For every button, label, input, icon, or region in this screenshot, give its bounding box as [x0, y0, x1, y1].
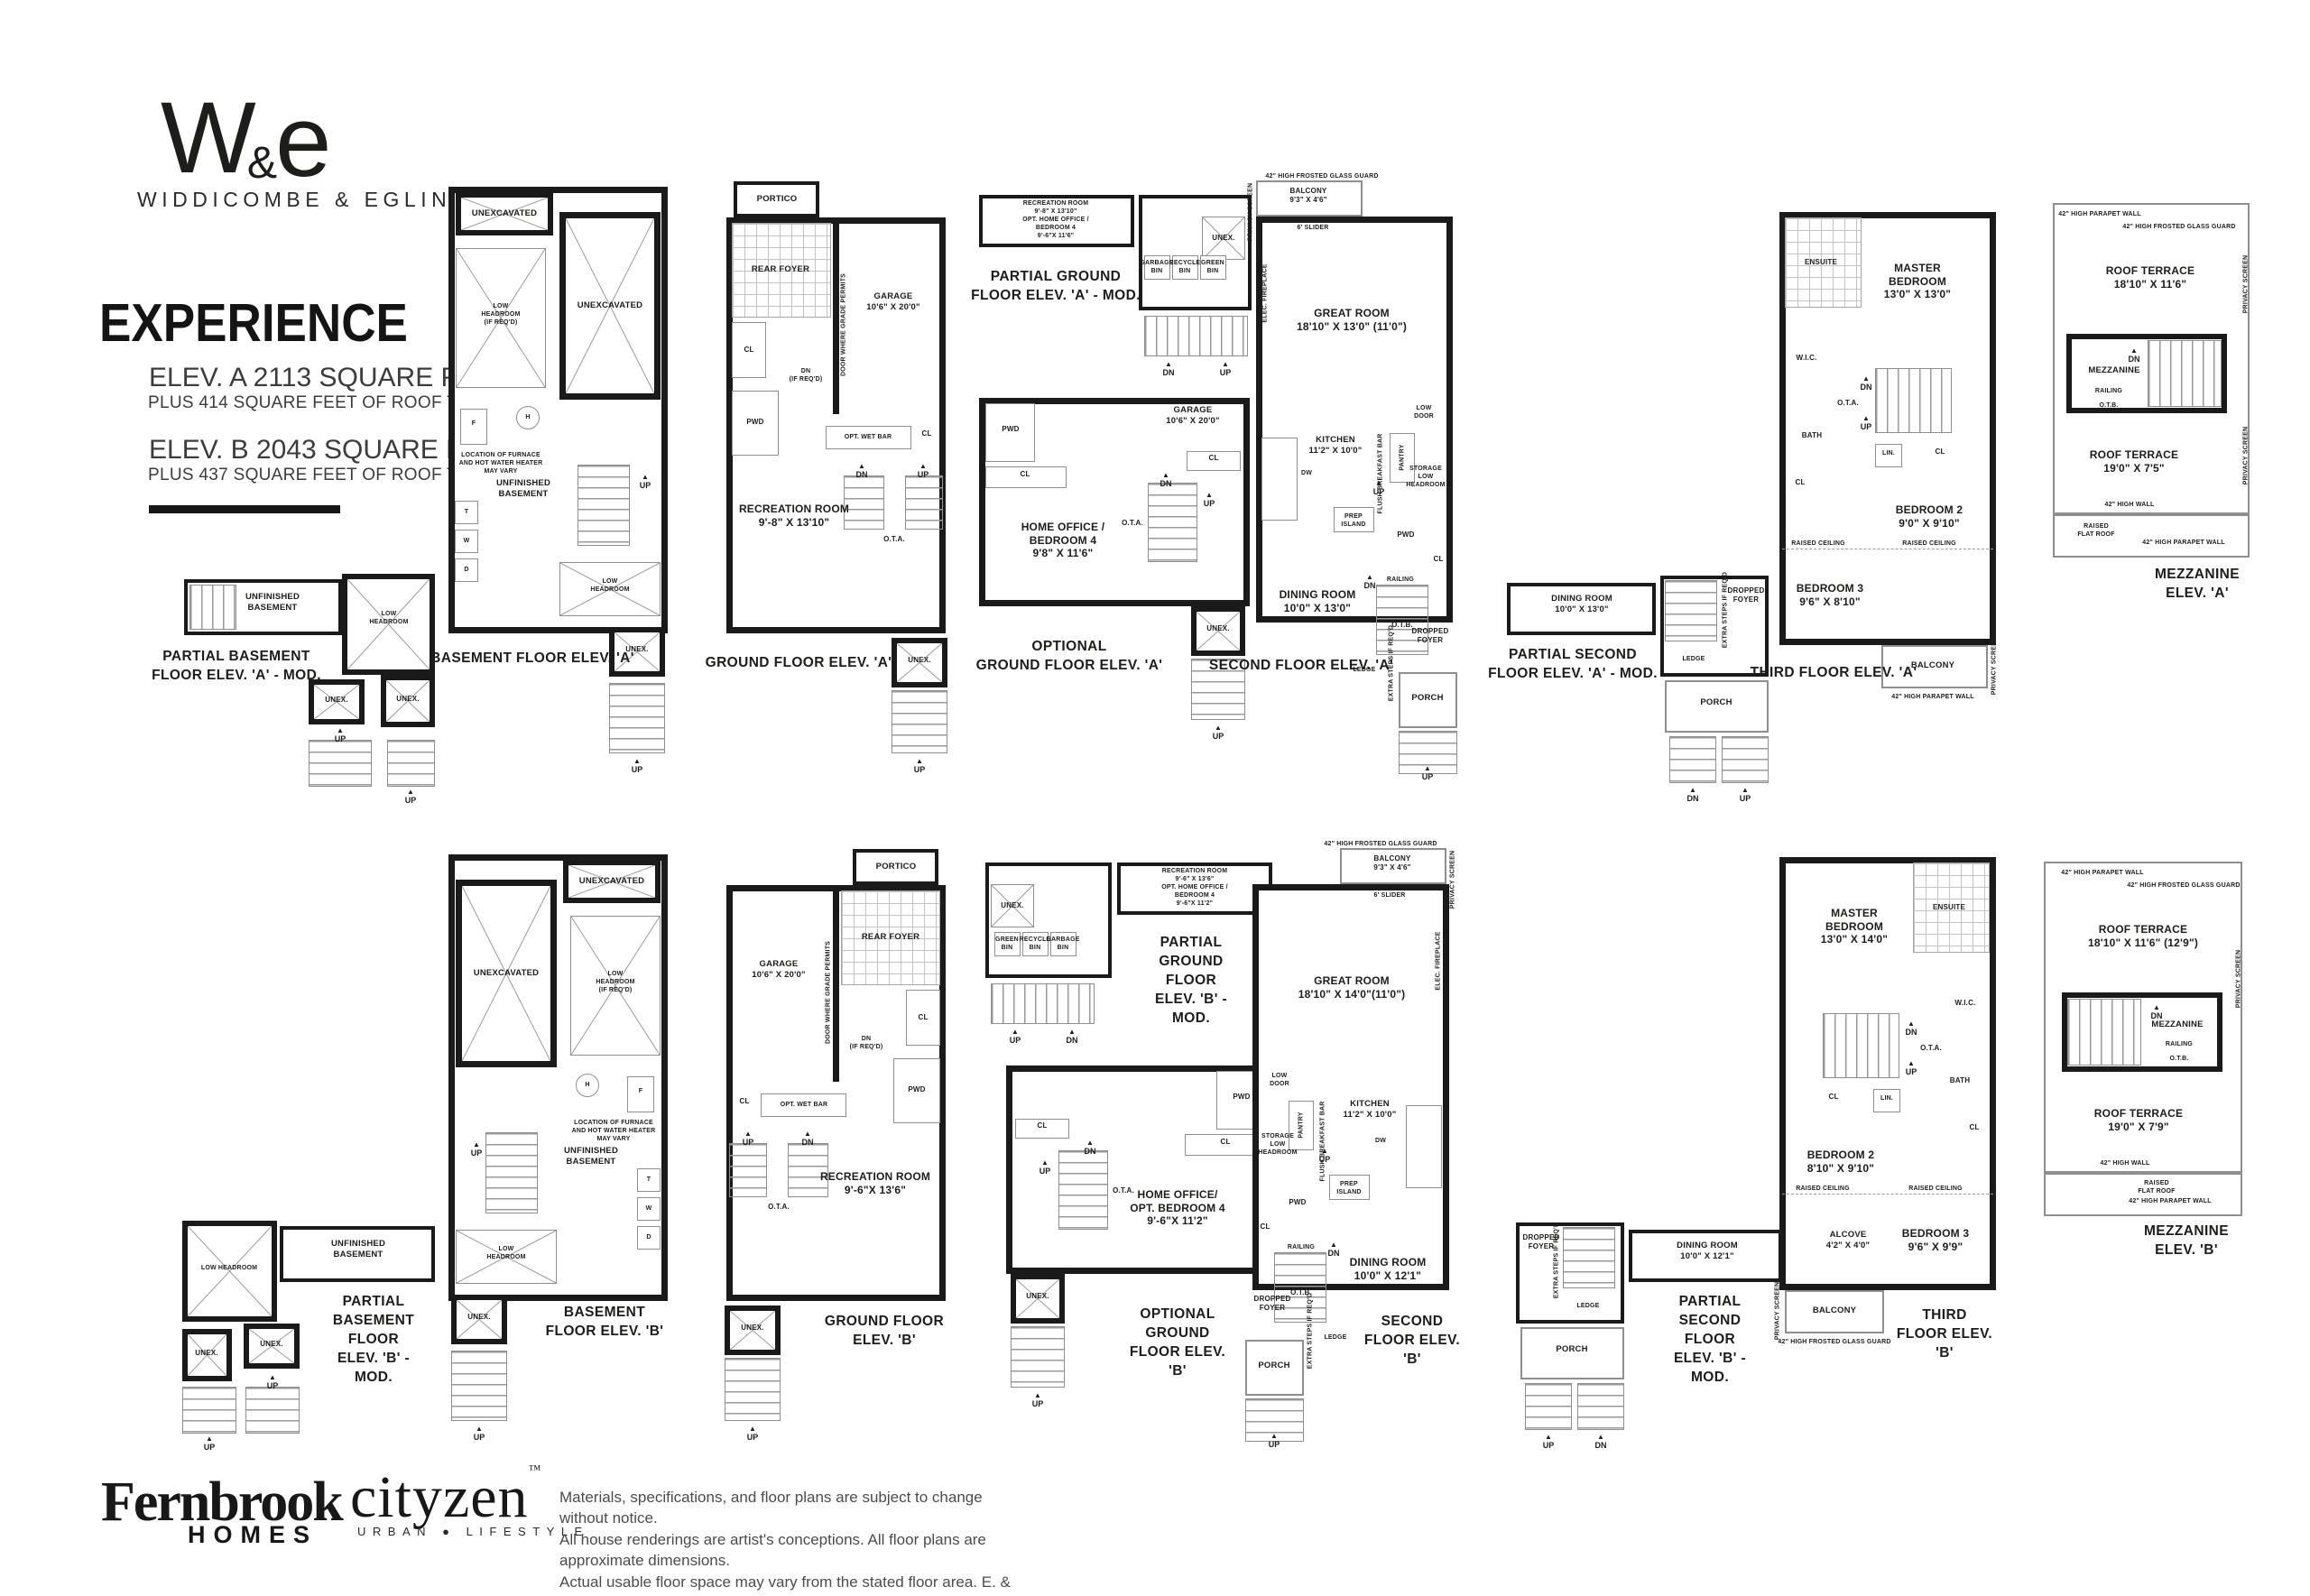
up-arrow: UP — [747, 1425, 759, 1442]
plan-partial-and-optional-ground-a: RECREATION ROOM 9'-8" X 13'10" OPT. HOME… — [975, 176, 1281, 771]
plan-partial-basement-b: LOW HEADROOM UNFINISHED BASEMENT UNEX. U… — [173, 1213, 444, 1448]
extra-steps-note: EXTRA STEPS IF REQ'D — [1306, 1293, 1314, 1369]
room-label-porch: PORCH — [1411, 693, 1443, 704]
up-arrow: UP — [918, 463, 929, 479]
stairs — [485, 1132, 538, 1213]
fireplace-note: ELEC. FIREPLACE — [1434, 931, 1442, 990]
plan-caption: PARTIAL BASEMENT FLOOR ELEV. 'A' - MOD. — [152, 648, 321, 686]
room-label-roof-terrace: ROOF TERRACE 18'10" X 11'6" — [2106, 264, 2194, 291]
up-arrow: UP — [1220, 361, 1232, 377]
room-label-lin: LIN. — [1880, 1094, 1893, 1102]
plan-caption: BASEMENT FLOOR ELEV. 'A' — [430, 650, 634, 669]
plan-caption: MEZZANINE ELEV. 'A' — [2141, 566, 2254, 604]
room-label-low-headroom: LOW HEADROOM (IF REQ'D) — [596, 970, 634, 994]
letter-w: W — [464, 537, 470, 545]
logo-e: e — [275, 105, 331, 179]
room-label-home-office: HOME OFFICE/ OPT. BEDROOM 4 9'-6"X 11'2" — [1130, 1188, 1224, 1228]
stairs-up — [729, 1143, 767, 1197]
letter-t: T — [647, 1176, 651, 1184]
dn-arrow: DN — [1067, 1029, 1078, 1045]
room-label-bedroom2: BEDROOM 2 8'10" X 9'10" — [1807, 1149, 1874, 1175]
letter-h: H — [525, 413, 530, 421]
plan-caption: SECOND FLOOR ELEV. 'A' — [1209, 657, 1393, 676]
entry-stairs — [609, 683, 665, 753]
room-label-dining: DINING ROOM 10'0" X 13'0" — [1551, 594, 1612, 614]
up-arrow: UP — [1740, 787, 1751, 803]
plan-caption: MEZZANINE ELEV. 'B' — [2127, 1222, 2246, 1260]
room-label-unex: UNEX. — [1001, 901, 1023, 910]
room-label-cl: CL — [739, 1097, 749, 1106]
up-arrow: UP — [1861, 415, 1872, 431]
stairs — [1144, 316, 1248, 356]
plan-partial-second-b: DROPPED FOYER EXTRA STEPS IF REQ'D LEDGE… — [1507, 1213, 1796, 1448]
letter-h: H — [585, 1081, 589, 1089]
dn-arrow: DN — [2129, 347, 2140, 364]
privacy-screen-note: PRIVACY SCREEN — [1448, 851, 1456, 909]
fireplace-note: ELEC. FIREPLACE — [1261, 263, 1269, 322]
room-label-portico: PORTICO — [757, 194, 798, 205]
room-label-cl: CL — [1260, 1222, 1270, 1232]
entry-stairs — [892, 690, 947, 753]
dn-arrow: DN — [1163, 361, 1175, 377]
room-label-dining: DINING ROOM 10'0" X 13'0" — [1280, 588, 1356, 614]
door-grade-note: DOOR WHERE GRADE PERMITS — [824, 941, 832, 1044]
dn-arrow: DN — [2151, 1004, 2163, 1020]
plan-mezzanine-a: 42" HIGH PARAPET WALL 42" HIGH FROSTED G… — [2044, 185, 2310, 609]
plan-caption: GROUND FLOOR ELEV. 'A' — [706, 654, 892, 673]
disclaimer-line-3: Actual usable floor space may vary from … — [559, 1573, 1011, 1596]
raised-flat-roof-note: RAISED FLAT ROOF — [2138, 1179, 2175, 1195]
room-label-dropped-foyer: DROPPED FOYER — [1412, 627, 1449, 645]
dn-arrow: DN — [1160, 472, 1172, 488]
letter-w: W — [646, 1204, 652, 1213]
room-label-porch: PORCH — [1556, 1344, 1587, 1355]
room-label-roof-terrace: ROOF TERRACE 18'10" X 11'6" (12'9") — [2088, 923, 2198, 949]
entry-stairs — [725, 1358, 781, 1421]
high-wall-note: 42" HIGH WALL — [2105, 501, 2155, 509]
room-label-wic: W.I.C. — [1797, 354, 1817, 363]
room-label-unfinished-basement: UNFINISHED BASEMENT — [564, 1146, 618, 1167]
stairs — [1875, 368, 1952, 433]
letter-f: F — [639, 1087, 642, 1095]
parapet-note: 42" HIGH PARAPET WALL — [2058, 210, 2140, 218]
room-label-prep-island: PREP ISLAND — [1341, 512, 1365, 529]
room-label-unexcavated: UNEXCAVATED — [579, 876, 644, 887]
foyer-stairs — [1665, 580, 1717, 641]
room-label-unex: UNEX. — [195, 1349, 217, 1358]
room-label-pwd: PWD — [1397, 530, 1414, 540]
raised-ceiling-note: RAISED CEILING — [1791, 540, 1845, 548]
room-label-dining: DINING ROOM 10'0" X 12'1" — [1677, 1241, 1738, 1261]
parapet-note: 42" HIGH PARAPET WALL — [1891, 693, 1973, 701]
fernbrook-homes-label: HOMES — [188, 1521, 318, 1549]
ledge-note: LEDGE — [1324, 1333, 1346, 1342]
up-arrow: UP — [1039, 1159, 1051, 1176]
dn-if-reqd: DN (IF REQ'D) — [790, 367, 823, 383]
we-logo: W & e — [161, 97, 331, 179]
plan-second-b: 42" HIGH FROSTED GLASS GUARD PRIVACY SCR… — [1245, 839, 1525, 1453]
plan-caption: GROUND FLOOR ELEV. 'B' — [819, 1313, 950, 1351]
room-label-otb: O.T.B. — [2099, 401, 2118, 410]
room-label-cl: CL — [744, 346, 753, 355]
trademark-symbol: ™ — [529, 1463, 542, 1477]
up-arrow: UP — [640, 474, 651, 490]
room-label-wet-bar: OPT. WET BAR — [845, 433, 892, 441]
slider-note: 6' SLIDER — [1298, 224, 1329, 232]
raised-ceiling-note: RAISED CEILING — [1908, 1185, 1963, 1193]
divider-rule — [149, 505, 340, 513]
glass-guard-note: 42" HIGH FROSTED GLASS GUARD — [1265, 172, 1378, 180]
room-label-ota: O.T.A. — [1837, 399, 1859, 408]
room-label-master: MASTER BEDROOM 13'0" X 14'0" — [1821, 907, 1888, 946]
up-arrow: UP — [1204, 492, 1215, 508]
room-label-wet-bar: OPT. WET BAR — [781, 1101, 828, 1109]
up-arrow: UP — [405, 789, 417, 805]
room-label-low-headroom: LOW HEADROOM — [369, 610, 408, 626]
room-label-mezzanine: MEZZANINE — [2088, 365, 2139, 376]
up-arrow: UP — [1032, 1392, 1044, 1408]
up-arrow: UP — [471, 1141, 483, 1158]
plan-partial-and-optional-ground-b: RECREATION ROOM 9'-6" X 13'6" OPT. HOME … — [975, 844, 1281, 1439]
room-label-porch: PORCH — [1700, 697, 1732, 708]
stairs — [1577, 1383, 1624, 1430]
room-label-low-headroom: LOW HEADROOM — [486, 1245, 525, 1261]
room-label-bedroom2: BEDROOM 2 9'0" X 9'10" — [1896, 503, 1963, 530]
up-arrow: UP — [632, 758, 643, 774]
bin-label: GREEN BIN — [995, 936, 1019, 952]
room-label-porch: PORCH — [1258, 1361, 1289, 1371]
stairs — [1058, 1150, 1108, 1230]
disclaimer-line-2: All house renderings are artist's concep… — [559, 1531, 986, 1569]
low-headroom-hatch — [189, 585, 236, 630]
room-label-pwd: PWD — [908, 1085, 925, 1094]
logo-w: W — [161, 97, 251, 179]
room-label-cl: CL — [1208, 454, 1218, 463]
dn-arrow: DN — [1906, 1020, 1917, 1037]
stairs — [1669, 736, 1716, 783]
stairs — [1525, 1383, 1572, 1430]
letter-t: T — [465, 508, 468, 516]
plan-caption: OPTIONAL GROUND FLOOR ELEV. 'B' — [1126, 1305, 1230, 1381]
plan-caption: THIRD FLOOR ELEV. 'A' — [1751, 664, 1917, 683]
room-label-mezzanine: MEZZANINE — [2151, 1019, 2203, 1030]
glass-guard-note: 42" HIGH FROSTED GLASS GUARD — [2127, 881, 2240, 890]
railing-note: RAILING — [1387, 576, 1414, 584]
room-label-prep-island: PREP ISLAND — [1336, 1180, 1361, 1196]
room-label-unex: UNEX. — [1206, 624, 1229, 633]
room-label-roof-terrace2: ROOF TERRACE 19'0" X 7'5" — [2090, 448, 2178, 475]
room-label-bedroom3: BEDROOM 3 9'6" X 8'10" — [1797, 582, 1863, 608]
furnace-note: LOCATION OF FURNACE AND HOT WATER HEATER… — [459, 451, 543, 475]
garage-wall — [833, 890, 839, 1082]
breakfast-bar-note: FLUSH BREAKFAST BAR — [1376, 434, 1384, 514]
room-label-garage: GARAGE 10'6" X 20'0" — [752, 959, 805, 980]
stairs — [245, 1387, 300, 1434]
door-grade-note: DOOR WHERE GRADE PERMITS — [839, 273, 847, 376]
room-label-wic: W.I.C. — [1955, 999, 1976, 1008]
room-label-roof-terrace2: ROOF TERRACE 19'0" X 7'9" — [2094, 1107, 2183, 1133]
room-label-rec-room: RECREATION ROOM 9'-8" X 13'10" OPT. HOME… — [1022, 199, 1089, 240]
bin-label: RECYCLE BIN — [1169, 259, 1201, 275]
glass-guard-note: 42" HIGH FROSTED GLASS GUARD — [1324, 840, 1437, 848]
privacy-screen-note: PRIVACY SCREEN — [2241, 255, 2250, 313]
room-label-pwd: PWD — [746, 418, 763, 427]
room-label-unex: UNEX. — [260, 1340, 282, 1349]
furnace-note: LOCATION OF FURNACE AND HOT WATER HEATER… — [572, 1119, 656, 1143]
dn-arrow: DN — [856, 463, 868, 479]
room-label-unex: UNEX. — [908, 656, 930, 665]
room-label-unex: UNEX. — [467, 1313, 490, 1322]
plan-caption: PARTIAL BASEMENT FLOOR ELEV. 'B' - MOD. — [333, 1293, 414, 1388]
dn-arrow: DN — [802, 1130, 814, 1147]
up-arrow: UP — [1213, 724, 1224, 741]
room-label-portico: PORTICO — [876, 862, 917, 872]
room-label-pwd: PWD — [1002, 425, 1019, 434]
up-arrow: UP — [335, 727, 346, 743]
high-wall-note: 42" HIGH WALL — [2101, 1159, 2150, 1167]
room-label-cl: CL — [921, 429, 931, 438]
room-label-bath: BATH — [1802, 431, 1822, 440]
room-label-cl: CL — [1935, 447, 1945, 457]
kitchen-counter — [1406, 1105, 1442, 1188]
privacy-screen-note: PRIVACY SCREEN — [2241, 427, 2250, 484]
room-label-balcony: BALCONY 9'3" X 4'6" — [1373, 854, 1410, 872]
room-label-ota: O.T.A. — [1122, 519, 1143, 528]
parapet-note: 42" HIGH PARAPET WALL — [2061, 869, 2143, 877]
storage-low-headroom: STORAGE LOW HEADROOM — [1406, 465, 1445, 489]
room-label-cl: CL — [1795, 478, 1805, 487]
plan-third-a: ENSUITE MASTER BEDROOM 13'0" X 13'0" W.I… — [1769, 198, 2044, 704]
room-label-unex: UNEX. — [396, 695, 419, 704]
dn-if-reqd: DN (IF REQ'D) — [850, 1035, 883, 1051]
floor-plan-sheet: W & e WIDDICOMBE & EGLINTON EXPERIENCE E… — [0, 0, 2310, 1596]
plan-caption: BASEMENT FLOOR ELEV. 'B' — [537, 1304, 672, 1342]
low-door-note: LOW DOOR — [1270, 1072, 1289, 1088]
cityzen-tagline: URBAN ● LIFESTYLE — [357, 1525, 589, 1538]
entry-stairs — [451, 1351, 507, 1421]
room-label-cl: CL — [1037, 1121, 1047, 1130]
logo-ampersand: & — [247, 149, 277, 177]
dn-arrow: DN — [1595, 1434, 1607, 1450]
foyer-stairs — [1563, 1227, 1615, 1288]
room-label-cl: CL — [1020, 470, 1030, 479]
raised-ceiling-line — [1782, 1194, 1993, 1195]
up-arrow: UP — [743, 1130, 754, 1147]
plan-partial-second-a: DINING ROOM 10'0" X 13'0" EXTRA STEPS IF… — [1502, 567, 1791, 801]
room-label-great-room: GREAT ROOM 18'10" X 14'0"(11'0") — [1298, 974, 1406, 1001]
raised-ceiling-note: RAISED CEILING — [1902, 540, 1956, 548]
plan-ground-a: PORTICO REAR FOYER GARAGE 10'6" X 20'0" … — [717, 176, 1015, 780]
up-arrow: UP — [1373, 480, 1385, 496]
mezzanine-stairs — [2067, 999, 2141, 1066]
up-arrow: UP — [1269, 1433, 1280, 1449]
stairs — [182, 1387, 236, 1434]
privacy-screen-note: PRIVACY SCREEN — [1773, 1282, 1781, 1340]
parapet-note: 42" HIGH PARAPET WALL — [2129, 1197, 2211, 1205]
stairs — [1722, 736, 1769, 783]
room-label-dw: DW — [1301, 469, 1312, 477]
room-label-unex: UNEX. — [1026, 1292, 1049, 1301]
room-label-balcony: BALCONY — [1911, 660, 1954, 671]
glass-guard-note: 42" HIGH FROSTED GLASS GUARD — [1778, 1338, 1890, 1346]
up-arrow: UP — [1906, 1060, 1917, 1076]
room-label-great-room: GREAT ROOM 18'10" X 13'0" (11'0") — [1297, 307, 1407, 333]
extra-steps-note: EXTRA STEPS IF REQ'D — [1721, 572, 1729, 648]
disclaimer-line-1: Materials, specifications, and floor pla… — [559, 1489, 983, 1527]
room-label-kitchen: KITCHEN 11'2" X 10'0" — [1344, 1099, 1397, 1120]
plan-caption: PARTIAL SECOND FLOOR ELEV. 'A' - MOD. — [1488, 646, 1658, 684]
kitchen-counter — [1261, 438, 1298, 521]
room-label-low-headroom: LOW HEADROOM (IF REQ'D) — [481, 302, 520, 327]
dn-arrow: DN — [1364, 574, 1376, 590]
room-label-low-headroom: LOW HEADROOM — [201, 1264, 257, 1272]
room-label-ensuite: ENSUITE — [1933, 903, 1965, 912]
up-arrow: UP — [1422, 765, 1434, 781]
room-label-rear-foyer: REAR FOYER — [752, 264, 809, 275]
up-arrow: UP — [267, 1374, 279, 1390]
room-label-master: MASTER BEDROOM 13'0" X 13'0" — [1884, 262, 1951, 301]
room-label-recreation: RECREATION ROOM 9'-6"X 13'6" — [820, 1170, 930, 1196]
room-label-pwd: PWD — [1289, 1198, 1306, 1207]
raised-ceiling-line — [1782, 549, 1993, 549]
ledge-note: LEDGE — [1682, 655, 1705, 663]
room-label-garage: GARAGE 10'6" X 20'0" — [1166, 405, 1219, 426]
cityzen-wordmark: cityzen — [350, 1464, 529, 1530]
stairs — [991, 983, 1095, 1024]
room-label-balcony: BALCONY — [1813, 1305, 1856, 1316]
room-label-unfinished-basement: UNFINISHED BASEMENT — [331, 1239, 385, 1259]
plan-ground-b: PORTICO REAR FOYER GARAGE 10'6" X 20'0" … — [717, 844, 1015, 1448]
room-label-cl: CL — [1433, 555, 1443, 564]
room-label-unex: UNEX. — [325, 696, 347, 705]
room-label-rear-foyer: REAR FOYER — [862, 932, 919, 943]
room-label-pantry: PANTRY — [1398, 444, 1406, 470]
low-door-note: LOW DOOR — [1414, 404, 1434, 420]
room-label-unex: UNEX. — [741, 1324, 763, 1333]
plan-third-b: MASTER BEDROOM 13'0" X 14'0" ENSUITE W.I… — [1769, 844, 2044, 1349]
room-label-ota: O.T.A. — [883, 535, 905, 544]
plan-caption: SECOND FLOOR ELEV. 'B' — [1356, 1313, 1469, 1370]
room-label-alcove: ALCOVE 4'2" X 4'0" — [1826, 1230, 1870, 1250]
disclaimer-text: Materials, specifications, and floor pla… — [559, 1487, 1029, 1596]
stairs — [1148, 483, 1197, 562]
room-label-cl: CL — [1220, 1138, 1230, 1147]
up-arrow: UP — [474, 1425, 485, 1442]
bin-label: GARBAGE BIN — [1046, 936, 1079, 952]
room-label-home-office: HOME OFFICE / BEDROOM 4 9'8" X 11'6" — [1021, 521, 1105, 560]
plan-caption: PARTIAL GROUND FLOOR ELEV. 'B' - MOD. — [1146, 934, 1236, 1029]
raised-flat-roof-note: RAISED FLAT ROOF — [2077, 522, 2114, 539]
railing-note: RAILING — [1288, 1243, 1315, 1251]
up-arrow: UP — [1010, 1029, 1021, 1045]
plan-caption: THIRD FLOOR ELEV. 'B' — [1895, 1306, 1994, 1363]
stairs-dn — [844, 475, 884, 530]
room-label-balcony: BALCONY 9'3" X 4'6" — [1289, 187, 1326, 205]
entry-stairs — [1011, 1326, 1065, 1388]
room-label-cl: CL — [918, 1013, 928, 1022]
room-label-kitchen: KITCHEN 11'2" X 10'0" — [1309, 435, 1363, 456]
plan-partial-basement-a: UNFINISHED BASEMENT LOW HEADROOM UNEX. U… — [173, 567, 444, 801]
room-label-ensuite: ENSUITE — [1805, 258, 1837, 267]
slider-note: 6' SLIDER — [1374, 891, 1406, 899]
room-label-ota: O.T.A. — [1920, 1044, 1942, 1053]
room-label-cl: CL — [1828, 1093, 1838, 1102]
room-label-pantry: PANTRY — [1297, 1112, 1305, 1138]
room-label-unex: UNEX. — [1212, 234, 1234, 243]
room-label-cl: CL — [1969, 1123, 1979, 1132]
room-label-bedroom3: BEDROOM 3 9'6" X 9'9" — [1902, 1227, 1969, 1253]
room-label-unexcavated: UNEXCAVATED — [472, 208, 537, 219]
mezzanine-stairs — [2148, 340, 2222, 407]
storage-low-headroom: STORAGE LOW HEADROOM — [1258, 1132, 1297, 1157]
extra-steps-note: EXTRA STEPS IF REQ'D — [1552, 1222, 1560, 1298]
stairs — [1823, 1013, 1899, 1078]
dn-arrow: DN — [1861, 375, 1872, 392]
privacy-screen-note: PRIVACY SCREEN — [1246, 183, 1254, 241]
plan-caption: OPTIONAL GROUND FLOOR ELEV. 'A' — [976, 638, 1163, 676]
dn-arrow: DN — [1687, 787, 1699, 803]
up-arrow: UP — [204, 1435, 216, 1452]
room-label-unfinished-basement: UNFINISHED BASEMENT — [496, 478, 550, 499]
dn-arrow: DN — [1085, 1139, 1096, 1156]
room-label-rec-room: RECREATION ROOM 9'-6" X 13'6" OPT. HOME … — [1151, 867, 1238, 908]
room-label-unexcavated: UNEXCAVATED — [577, 300, 642, 311]
up-arrow: UP — [1543, 1434, 1555, 1450]
room-label-bath: BATH — [1950, 1076, 1970, 1085]
room-label-dropped-foyer: DROPPED FOYER — [1254, 1295, 1291, 1313]
parapet-note: 42" HIGH PARAPET WALL — [2142, 539, 2224, 547]
glass-guard-note: 42" HIGH FROSTED GLASS GUARD — [2122, 223, 2235, 231]
plan-caption: PARTIAL SECOND FLOOR ELEV. 'B' - MOD. — [1668, 1293, 1753, 1388]
railing-note: RAILING — [2095, 387, 2122, 395]
plan-basement-a: F H T W D UNEXCAVATED LOW HEADROOM (IF R… — [433, 176, 740, 780]
room-label-dropped-foyer: DROPPED FOYER — [1728, 586, 1765, 604]
room-label-garage: GARAGE 10'6" X 20'0" — [866, 291, 919, 312]
room-label-unexcavated: UNEXCAVATED — [474, 968, 539, 979]
room-label-low-headroom: LOW HEADROOM — [590, 577, 629, 594]
letter-d: D — [646, 1233, 651, 1241]
cityzen-logo: cityzen™ — [350, 1463, 541, 1532]
room-label-dining: DINING ROOM 10'0" X 12'1" — [1350, 1256, 1427, 1282]
stairs — [577, 465, 630, 546]
ledge-note: LEDGE — [1576, 1302, 1599, 1310]
dn-arrow: DN — [1328, 1241, 1340, 1258]
stairs — [387, 740, 435, 787]
room-label-lin: LIN. — [1882, 449, 1895, 457]
letter-d: D — [464, 566, 468, 574]
privacy-screen-note: PRIVACY SCREEN — [1990, 637, 1998, 695]
room-label-recreation: RECREATION ROOM 9'-8" X 13'10" — [739, 503, 849, 529]
room-label-otb: O.T.B. — [2169, 1055, 2188, 1063]
room-label-ota: O.T.A. — [1113, 1186, 1134, 1195]
room-label-ota: O.T.A. — [768, 1203, 790, 1212]
bin-label: GREEN BIN — [1201, 259, 1224, 275]
breakfast-bar-note: FLUSH BREAKFAST BAR — [1318, 1102, 1326, 1182]
plan-caption: PARTIAL GROUND FLOOR ELEV. 'A' - MOD. — [971, 268, 1141, 306]
up-arrow: UP — [914, 758, 926, 774]
page-title: EXPERIENCE — [99, 292, 408, 355]
plan-mezzanine-b: 42" HIGH PARAPET WALL 42" HIGH FROSTED G… — [2035, 844, 2305, 1268]
stairs — [309, 740, 372, 787]
stairs-up — [905, 475, 943, 530]
garage-wall — [833, 223, 839, 414]
plan-second-a: 42" HIGH FROSTED GLASS GUARD PRIVACY SCR… — [1245, 171, 1525, 785]
privacy-screen-note: PRIVACY SCREEN — [2234, 950, 2242, 1008]
railing-note: RAILING — [2166, 1040, 2193, 1048]
letter-f: F — [472, 420, 476, 428]
room-label-dw: DW — [1375, 1137, 1386, 1145]
room-label-unfinished-basement: UNFINISHED BASEMENT — [245, 592, 300, 613]
